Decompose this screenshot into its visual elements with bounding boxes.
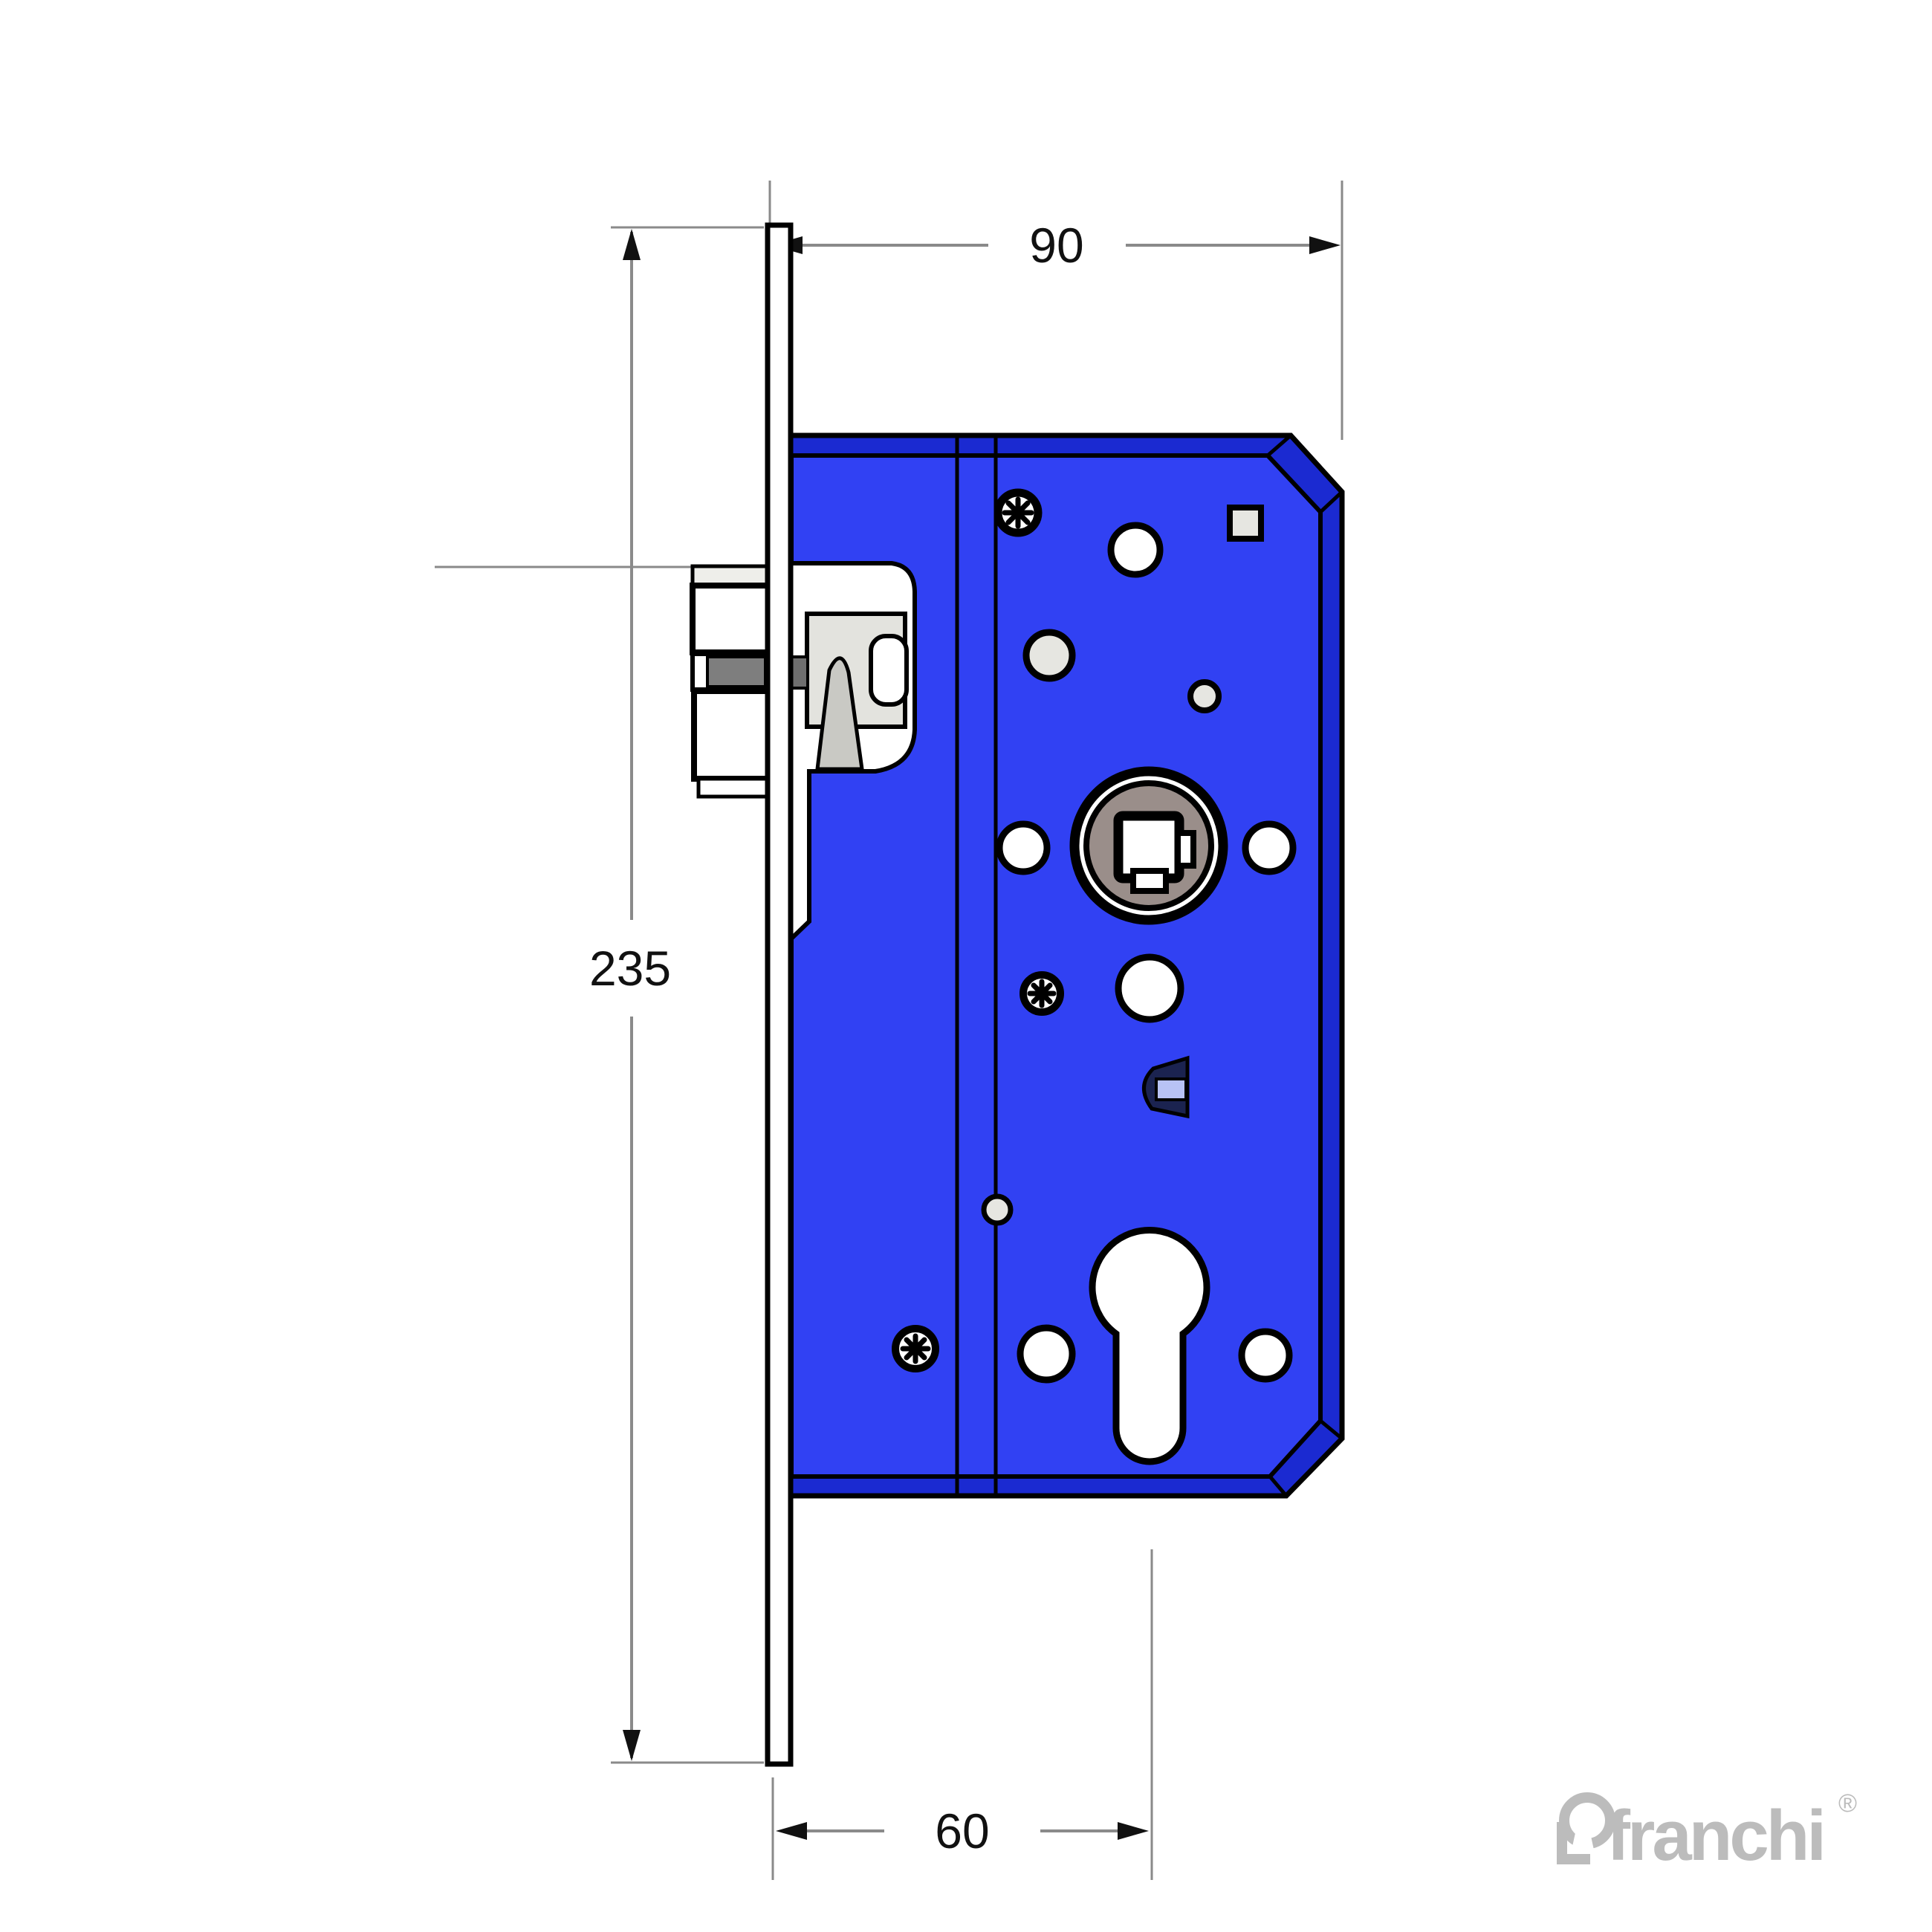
hole-mid-center [1118, 957, 1181, 1020]
latch-bolt-waist-band [707, 657, 765, 687]
hole-upper-small [1190, 682, 1219, 710]
backset-dimension-label: 60 [935, 1803, 989, 1858]
technical-drawing-canvas: 90 235 60 [0, 0, 1932, 1932]
brand-logo: franchi ® [1562, 1789, 1857, 1876]
latch-bolt-head-lower [694, 691, 768, 779]
arrowhead-down-icon [623, 1730, 641, 1761]
hole-upper-left [1026, 632, 1072, 678]
arrowhead-right-icon [1118, 1822, 1149, 1840]
hole-top-center [1111, 525, 1160, 574]
screw-bottom-left [895, 1329, 936, 1369]
dimension-backset-60: 60 [773, 1549, 1152, 1880]
hole-bottom-right [1242, 1332, 1289, 1379]
dimension-height-235: 235 [589, 227, 764, 1763]
hole-bottom-left [1020, 1328, 1072, 1380]
arrowhead-right-icon [1309, 236, 1341, 254]
arrowhead-left-icon [776, 1822, 807, 1840]
width-dimension-label: 90 [1029, 218, 1083, 273]
spindle-hub [1074, 771, 1223, 920]
screw-top-left [998, 493, 1038, 533]
faceplate [768, 225, 791, 1764]
keyhole-logo-icon [1562, 1798, 1610, 1859]
square-cutout [1230, 508, 1261, 539]
hole-lower-small [984, 1196, 1011, 1223]
stop-part-highlight [1156, 1079, 1186, 1100]
registered-trademark-symbol: ® [1838, 1789, 1857, 1818]
hub-bottom-tab [1133, 871, 1166, 891]
latch-bolt-base-strip [698, 779, 767, 797]
dimension-width-90: 90 [770, 181, 1342, 440]
latch-bolt [435, 566, 768, 797]
hole-hub-left [999, 824, 1047, 872]
height-dimension-label: 235 [589, 941, 671, 996]
latch-bolt-head-upper [693, 586, 768, 652]
screw-middle [1023, 975, 1060, 1012]
hub-side-tab [1178, 833, 1193, 866]
latch-notch [871, 636, 907, 704]
lock-diagram: 90 235 60 [0, 0, 1932, 1932]
hole-hub-right [1245, 824, 1293, 872]
brand-logo-text: franchi [1607, 1796, 1824, 1876]
arrowhead-up-icon [623, 229, 641, 260]
